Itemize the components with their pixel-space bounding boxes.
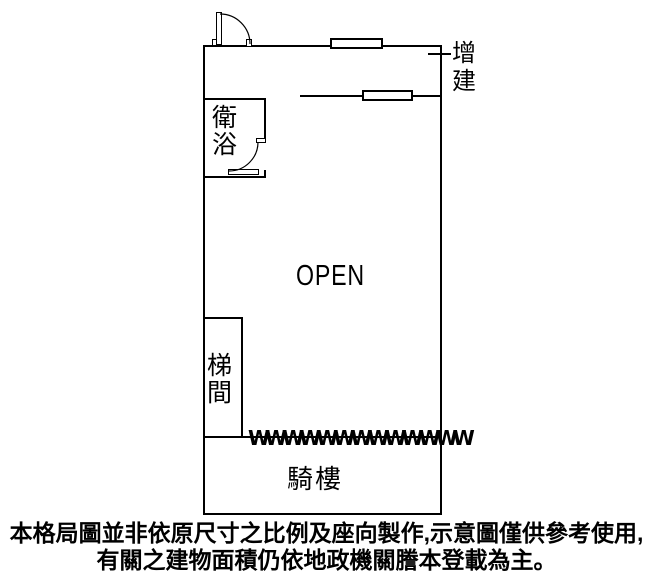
door-jamb-icon [256,138,266,143]
floor-plan-canvas: 增 建 衛 浴 OPEN 梯 間 WWWWWWWWWWWWW 騎樓 本格局圖並非… [0,0,653,586]
window-icon [330,38,383,49]
bathroom-label: 衛 浴 [212,105,240,159]
corrugated-wall-icon: WWWWWWWWWWWWW [248,428,440,448]
bathroom-door-leaf-icon [228,169,259,175]
arcade-label: 騎樓 [287,459,343,496]
stairwell-label: 梯 間 [207,353,235,407]
window-icon [362,90,413,101]
disclaimer-line-1: 本格局圖並非依原尺寸之比例及座向製作,示意圖僅供參考使用, [0,520,653,547]
extension-label: 增 建 [452,40,480,96]
bathroom-door-opening [263,143,268,170]
extension-leader-line [428,53,451,55]
entrance-door-leaf-icon [216,12,222,45]
door-jamb-icon [246,39,252,47]
disclaimer-line-2: 有關之建物面積仍依地政機關謄本登載為主。 [0,547,653,574]
open-area-label: OPEN [296,260,365,293]
